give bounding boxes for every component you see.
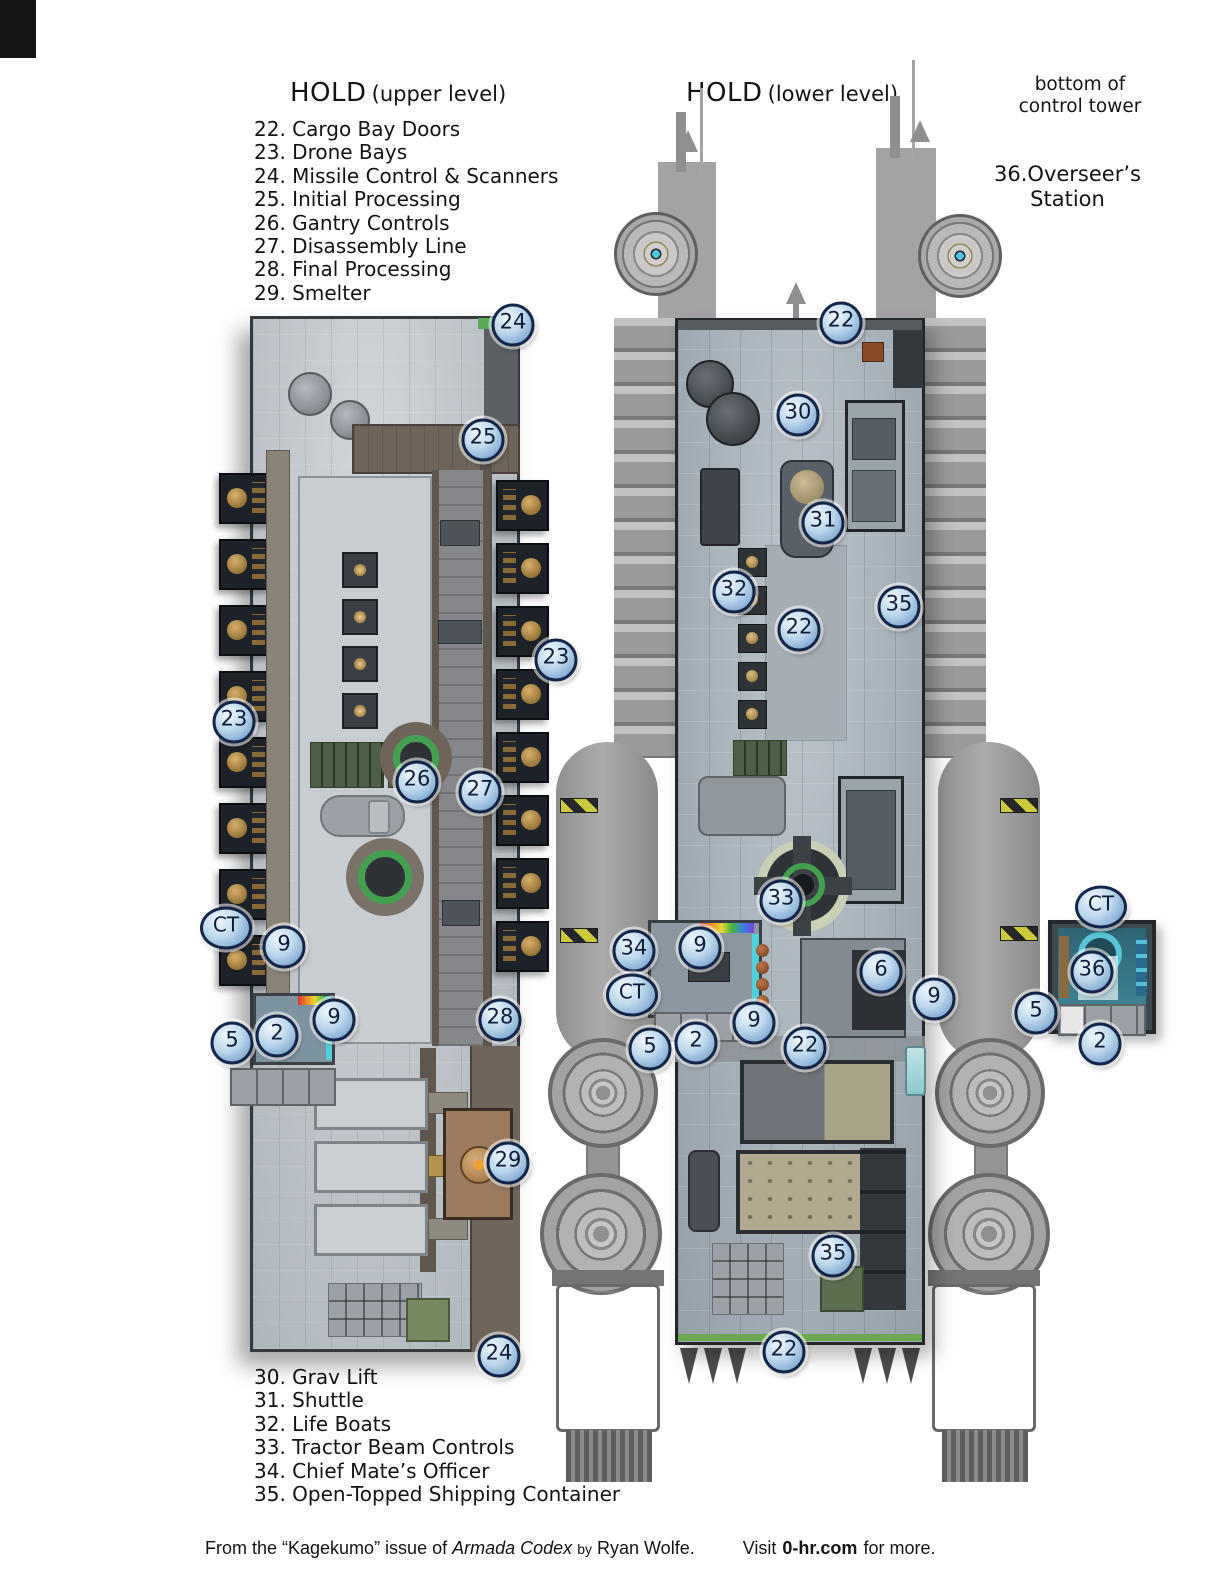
machinery-unit [852,418,896,460]
control-tower-caption: bottom of control tower [1000,74,1160,118]
tractor-beam-hub [792,874,814,896]
deck-plan-page: HOLD (upper level) 22. Cargo Bay Doors23… [0,0,1224,1584]
drone-bay [496,921,549,972]
cargo-barrel [756,961,769,974]
wall-screens [1136,938,1147,996]
stern-spike [680,1348,698,1384]
stern-spike [704,1348,722,1384]
antenna-mast [700,88,703,178]
engine-wheel [935,1038,1045,1148]
cargo-door-light-strip [478,318,512,329]
lower-title-text: HOLD [686,78,763,108]
hazard-stripe [1000,926,1038,941]
bow-pod [918,214,1002,298]
caption-line-1: bottom of [1000,74,1160,96]
conveyor-machine [442,900,480,926]
drone-bay [219,803,272,854]
footer-suffix: for more. [863,1538,935,1558]
upper-map-title: HOLD (upper level) [290,78,506,108]
locker-row [230,1068,336,1106]
drone-bay [219,869,272,920]
drone-bay [219,473,272,524]
drone-bay [219,671,272,722]
legend-item: 25. Initial Processing [254,188,558,211]
legend-item: 24. Missile Control & Scanners [254,165,558,188]
green-container [406,1298,450,1342]
gold-crate [342,646,378,682]
center-deck-zone [765,545,847,741]
upper-title-text: HOLD [290,78,367,108]
hazard-stripe [1000,798,1038,813]
shipping-container [740,1060,894,1144]
landing-skid [556,1284,660,1432]
locker-row [654,1012,756,1042]
machinery-unit [698,776,786,836]
storage-drum [706,392,760,446]
holo-table [1078,956,1118,1000]
legend-item: 35. Open-Topped Shipping Container [254,1483,620,1506]
hazard-stripe [560,928,598,943]
engine-wheel [548,1038,658,1148]
fuel-tank-column [614,318,678,758]
cargo-door-light-strip [486,1340,516,1351]
gold-crate [342,693,378,729]
console-screens [700,923,754,933]
caption-line-2: control tower [1000,96,1160,118]
life-boat-pallet [738,586,767,615]
storage-tank [288,372,332,416]
bright-cabinet [1060,1006,1084,1034]
life-boat-pallet [738,548,767,577]
legend-item: 22. Cargo Bay Doors [254,118,558,141]
dark-equipment-block [852,950,906,1030]
cargo-pallets [733,740,787,776]
footer-site-link[interactable]: 0-hr.com [782,1538,857,1558]
gantry-controls-ring [393,735,439,781]
footer-author: Ryan Wolfe. [597,1538,695,1558]
cargo-barrel [756,944,769,957]
stern-spike [854,1348,872,1384]
machinery-unit [852,470,896,522]
bow-pod [614,212,698,296]
drone-bay [496,543,549,594]
up-arrow-icon [910,120,930,142]
station-label-line-1: 36.Overseer’s [985,162,1150,187]
legend-item: 28. Final Processing [254,258,558,281]
coolant-cylinder [905,1046,926,1096]
drone-bay [496,606,549,657]
drone-bay [496,480,549,531]
office-desk [688,952,730,982]
cargo-bay-door-wall [678,320,922,330]
up-arrow-icon [678,130,698,152]
supply-crate [862,342,884,362]
stern-spike [728,1348,746,1384]
footer-byword: by [577,1541,592,1557]
green-container [820,1266,864,1312]
legend-item: 23. Drone Bays [254,141,558,164]
drone-bay [496,795,549,846]
shuttle-dome [790,470,824,504]
robot-arm [688,1150,720,1232]
engine-pod [556,742,658,1062]
processing-bay [314,1204,428,1256]
lower-subtitle-text: (lower level) [768,82,898,106]
bronze-panel [1059,936,1069,998]
hazard-stripe [560,798,598,813]
dark-crate-column [860,1148,906,1310]
drone-bay [219,605,272,656]
conveyor-machine [440,520,480,546]
console-panel [893,330,923,388]
hull-side-wall [266,450,290,1050]
cargo-door-light-strip [678,1334,922,1341]
legend-item: 26. Gantry Controls [254,212,558,235]
crane-ring [358,850,412,904]
landing-brush [942,1430,1028,1482]
arrow-stem [793,302,799,318]
landing-brush [566,1430,652,1482]
crate-stack [712,1243,784,1315]
smelter-glow [474,1160,484,1170]
processing-bay [314,1141,428,1193]
grav-lift-truck [700,468,740,546]
map-badge-5: 5 [211,1022,254,1065]
station-door [1082,1034,1120,1048]
cargo-pallets [310,742,384,788]
footer-prefix: From the “Kagekumo” issue of [205,1538,452,1558]
tower-spire [890,96,900,158]
legend-item: 29. Smelter [254,282,558,305]
engine-pod [938,742,1040,1062]
gold-crate [342,599,378,635]
drone-bay [496,732,549,783]
cargo-barrel [756,978,769,991]
machinery-unit [846,790,896,890]
stern-spike [878,1348,896,1384]
loader-robot [368,800,390,834]
fuel-tank-column [922,318,986,758]
drone-bay [219,935,272,986]
life-boat-pallet [738,662,767,691]
up-arrow-icon [786,282,806,304]
feed-belt [428,1218,468,1240]
footer-book-title: Armada Codex [452,1538,572,1558]
processing-walkway [352,424,520,474]
page-corner-mark [0,0,36,58]
lower-map-title: HOLD (lower level) [686,78,898,108]
drone-bay [219,539,272,590]
legend-item: 27. Disassembly Line [254,235,558,258]
cyan-display-strip [326,1002,332,1060]
footer-credit: From the “Kagekumo” issue of Armada Code… [205,1538,935,1559]
life-boat-pallet [738,700,767,729]
life-boat-pallet [738,624,767,653]
conveyor-machine [438,620,482,644]
upper-subtitle-text: (upper level) [372,82,507,106]
gold-crate [342,552,378,588]
antenna-mast [912,60,915,160]
upper-legend: 22. Cargo Bay Doors23. Drone Bays24. Mis… [254,118,558,305]
landing-skid [932,1284,1036,1432]
stern-spike [902,1348,920,1384]
drone-bay [219,737,272,788]
drone-bay [496,669,549,720]
station-label-line-2: Station [985,187,1150,212]
drone-bay [496,858,549,909]
cargo-barrel [756,995,769,1008]
machinery-unit [320,795,405,837]
missile-control-room [484,320,518,426]
footer-visit: Visit [743,1538,777,1558]
overseer-station-label: 36.Overseer’s Station [985,162,1150,212]
